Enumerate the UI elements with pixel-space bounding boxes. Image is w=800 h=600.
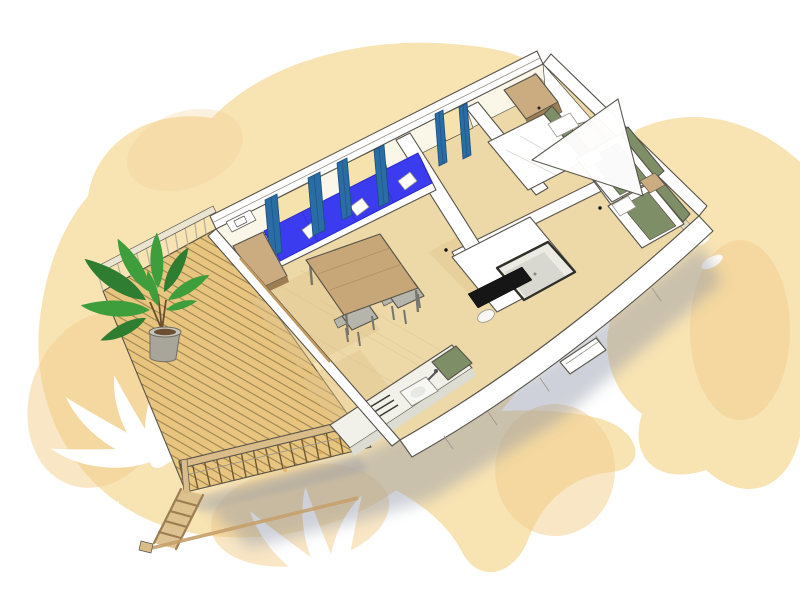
pot-soil	[154, 329, 176, 335]
wardrobe-handle	[538, 107, 541, 110]
door-handle-dot	[444, 248, 447, 251]
door-handle-dot-2	[598, 206, 601, 209]
illustration-stage: 3D cutaway floor plan of a mobile home w…	[0, 0, 800, 600]
mobile-home-floorplan-illustration: 3D cutaway floor plan of a mobile home w…	[0, 0, 800, 600]
shower-drain	[534, 273, 537, 276]
